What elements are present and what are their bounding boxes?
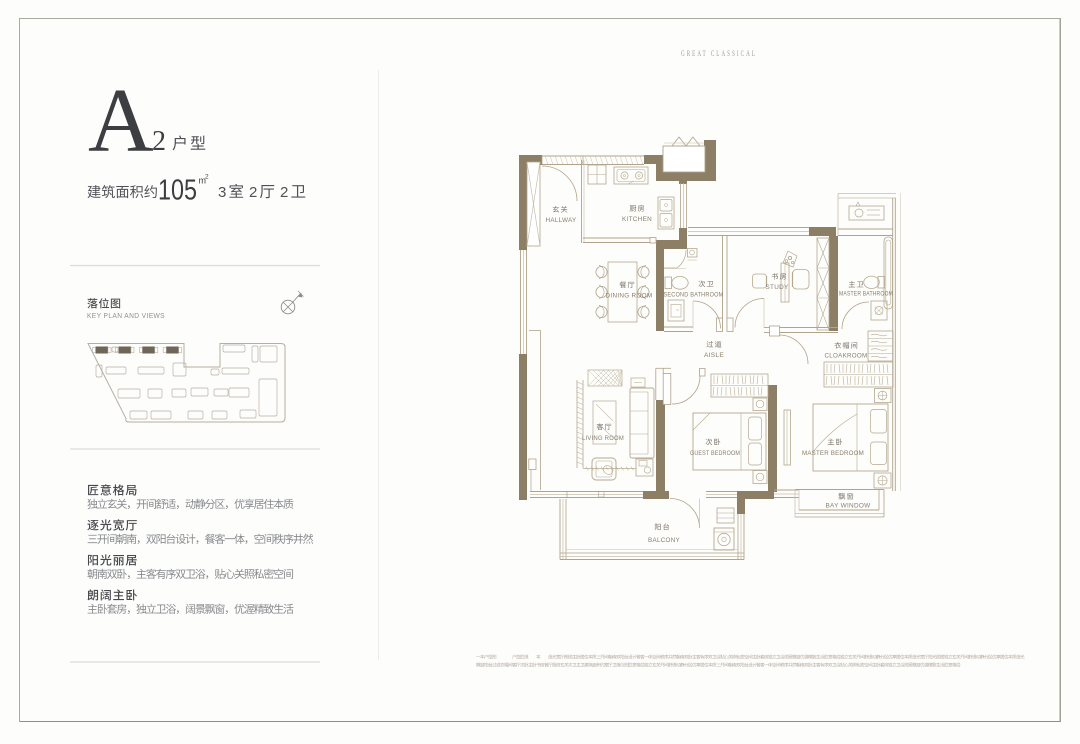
svg-text:2: 2 — [280, 184, 288, 201]
svg-text:105: 105 — [158, 175, 197, 207]
svg-text:3: 3 — [218, 184, 226, 201]
svg-text:BAY WINDOW: BAY WINDOW — [826, 503, 871, 510]
svg-text:MASTER BATHROOM: MASTER BATHROOM — [839, 291, 893, 298]
svg-text:MASTER BEDROOM: MASTER BEDROOM — [802, 450, 864, 457]
svg-text:2: 2 — [249, 184, 257, 201]
svg-text:A: A — [88, 70, 154, 171]
svg-text:STUDY: STUDY — [766, 284, 789, 291]
svg-text:KEY PLAN AND VIEWS: KEY PLAN AND VIEWS — [87, 313, 165, 320]
svg-text:BALCONY: BALCONY — [648, 537, 680, 544]
svg-text:KITCHEN: KITCHEN — [622, 216, 652, 223]
svg-text:AISLE: AISLE — [704, 352, 724, 359]
svg-text:DINING ROOM: DINING ROOM — [606, 293, 653, 300]
svg-text:GREAT CLASSICAL: GREAT CLASSICAL — [681, 49, 757, 58]
svg-text:2: 2 — [205, 174, 209, 181]
svg-text:SECOND BATHROOM: SECOND BATHROOM — [664, 292, 724, 299]
svg-text:LIVING ROOM: LIVING ROOM — [582, 435, 624, 442]
svg-text:GUEST BEDROOM: GUEST BEDROOM — [690, 450, 740, 457]
svg-text:2: 2 — [152, 126, 166, 157]
svg-text:HALLWAY: HALLWAY — [546, 217, 577, 224]
svg-text:CLOAKROOM: CLOAKROOM — [825, 353, 868, 360]
